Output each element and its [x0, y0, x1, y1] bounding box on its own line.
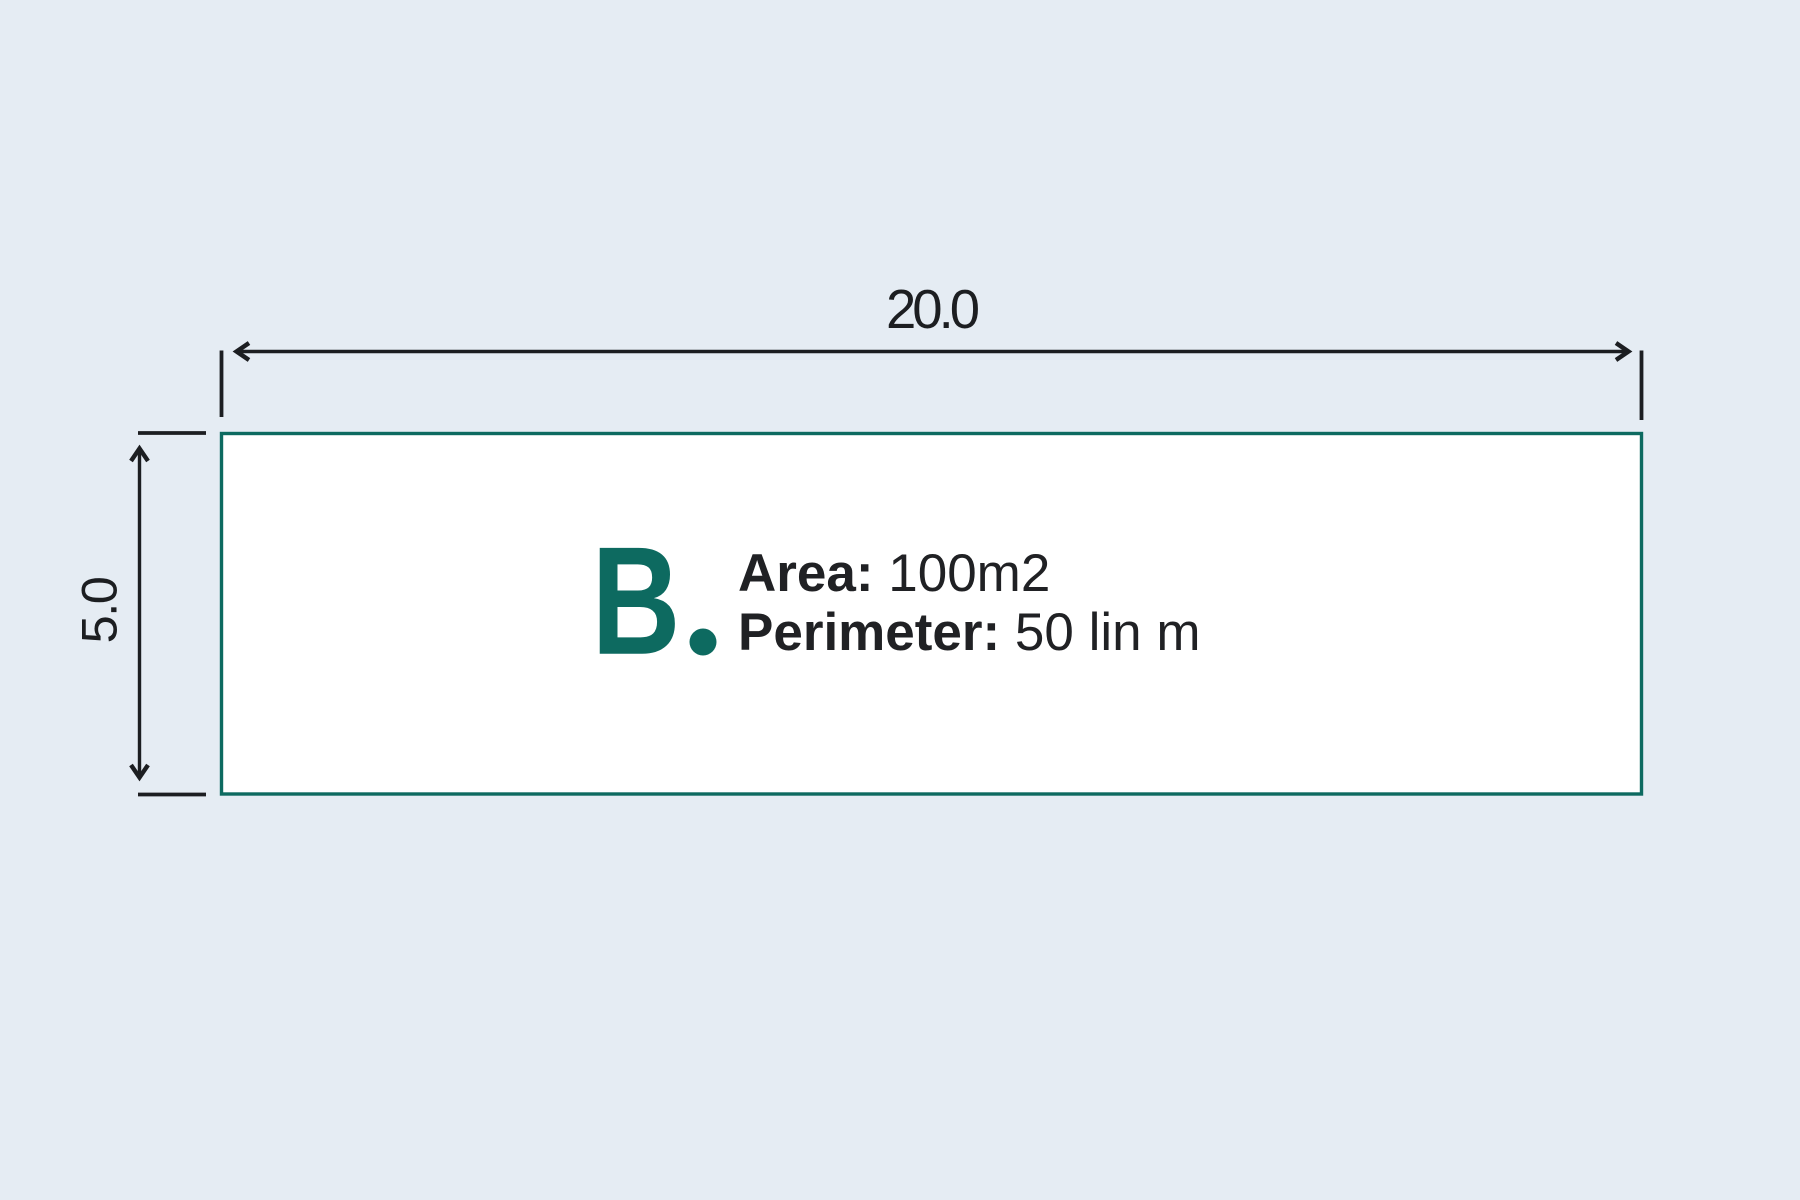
svg-text:B: B	[592, 515, 681, 687]
svg-text:5.0: 5.0	[71, 577, 128, 643]
svg-text:Area: 100m2: Area: 100m2	[738, 544, 1050, 603]
svg-text:20.0: 20.0	[886, 279, 979, 340]
svg-text:Perimeter: 50 lin m: Perimeter: 50 lin m	[738, 603, 1201, 662]
